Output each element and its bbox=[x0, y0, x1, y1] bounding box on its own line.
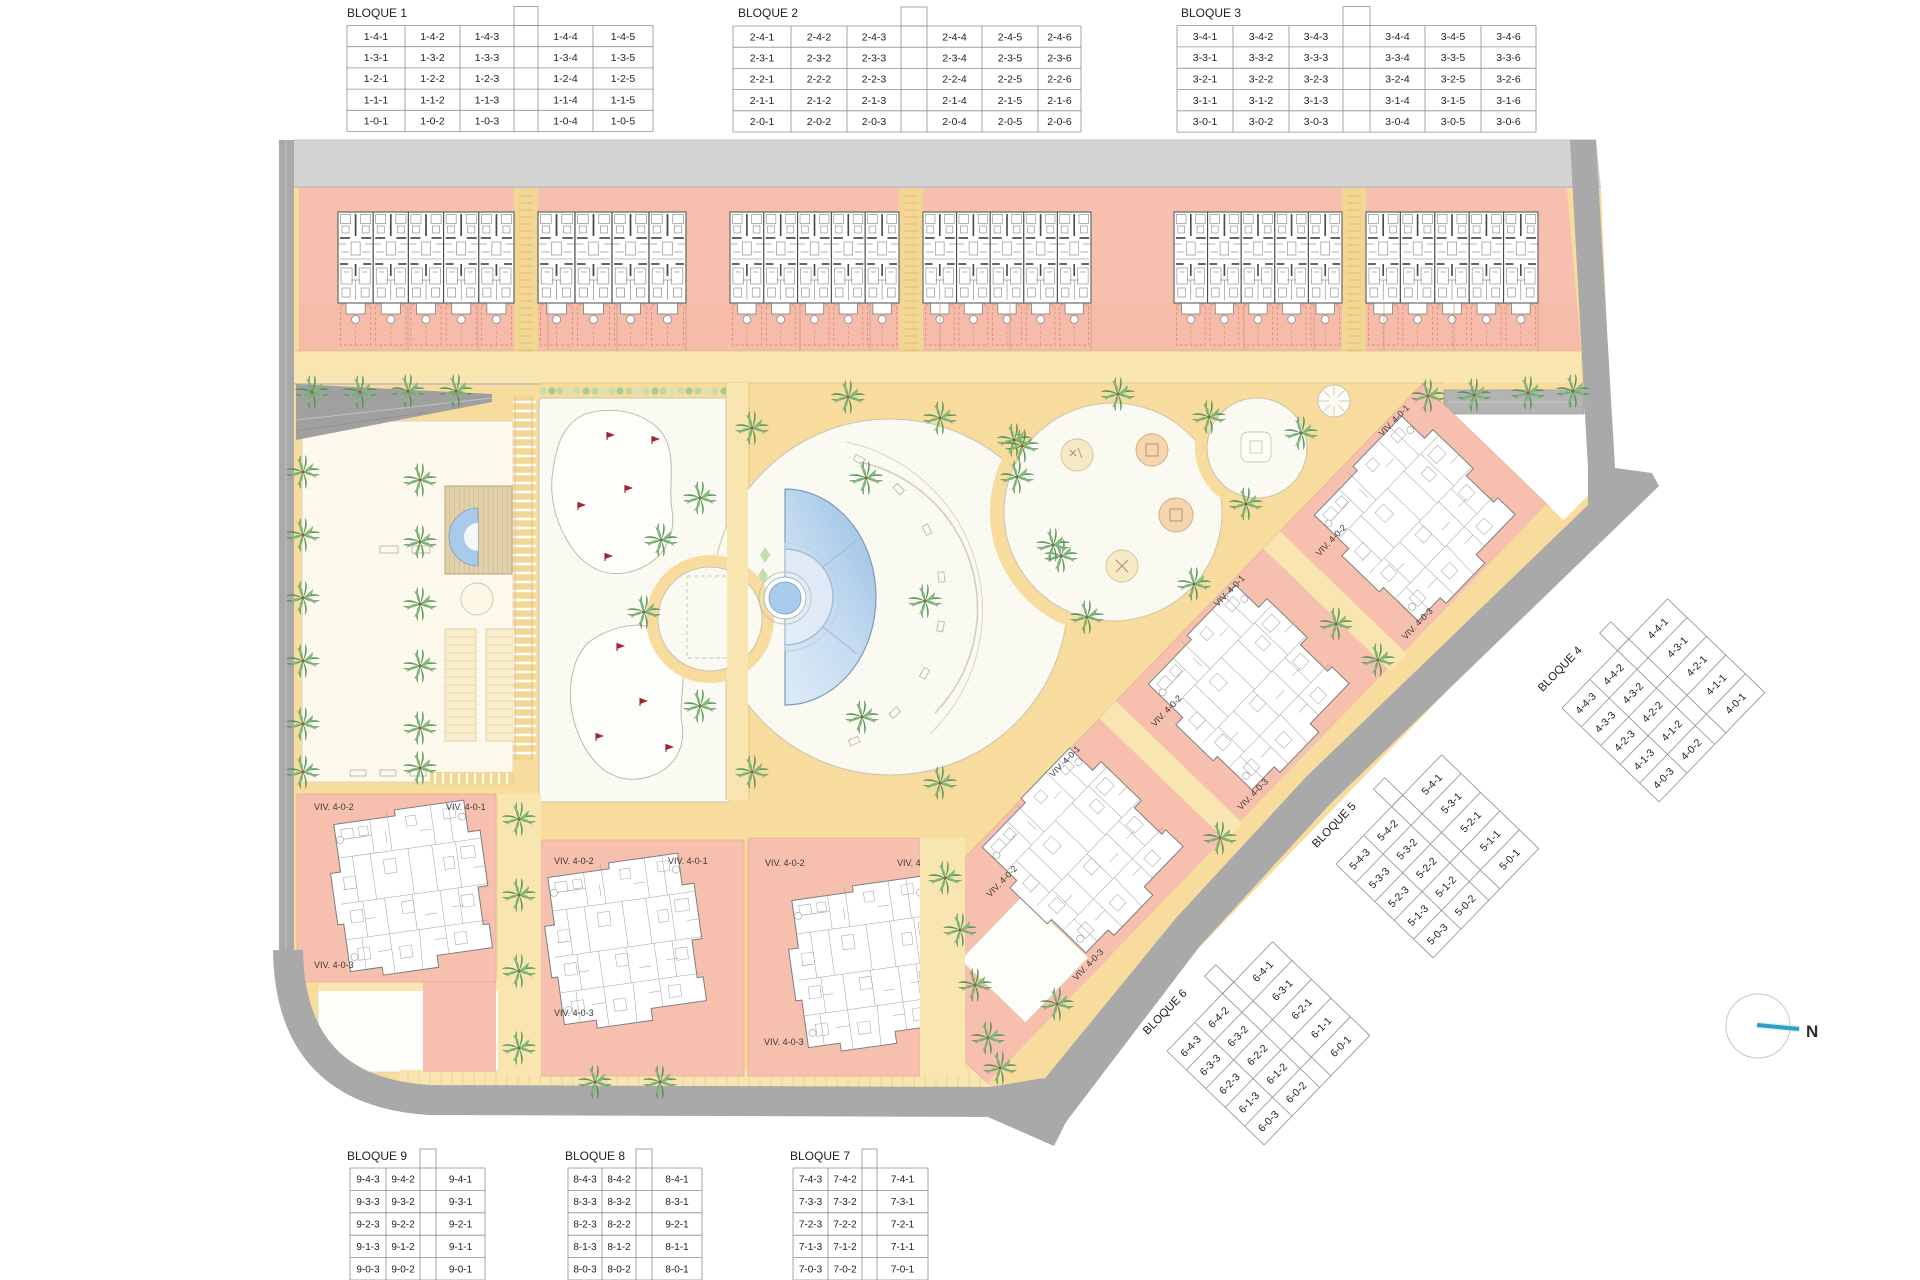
svg-text:7-4-1: 7-4-1 bbox=[891, 1175, 915, 1186]
svg-text:VIV. 4-0-1: VIV. 4-0-1 bbox=[446, 802, 486, 812]
svg-text:1-1-2: 1-1-2 bbox=[420, 94, 445, 106]
svg-text:2-0-6: 2-0-6 bbox=[1047, 116, 1072, 128]
svg-text:3-0-5: 3-0-5 bbox=[1441, 116, 1466, 128]
svg-text:2-0-1: 2-0-1 bbox=[750, 116, 775, 128]
svg-text:8-1-3: 8-1-3 bbox=[573, 1242, 597, 1253]
svg-text:1-3-5: 1-3-5 bbox=[611, 52, 636, 64]
svg-text:1-4-2: 1-4-2 bbox=[420, 31, 445, 43]
svg-text:3-1-3: 3-1-3 bbox=[1304, 95, 1329, 107]
svg-text:3-4-6: 3-4-6 bbox=[1496, 31, 1521, 43]
svg-text:1-0-4: 1-0-4 bbox=[553, 116, 578, 128]
svg-text:3-2-6: 3-2-6 bbox=[1496, 74, 1521, 86]
svg-text:BLOQUE 3: BLOQUE 3 bbox=[1181, 6, 1241, 20]
svg-text:1-1-1: 1-1-1 bbox=[364, 94, 389, 106]
svg-text:3-1-5: 3-1-5 bbox=[1441, 95, 1466, 107]
svg-text:2-1-4: 2-1-4 bbox=[942, 95, 967, 107]
svg-text:9-2-3: 9-2-3 bbox=[356, 1220, 380, 1231]
svg-text:1-1-4: 1-1-4 bbox=[553, 94, 578, 106]
svg-text:8-1-2: 8-1-2 bbox=[607, 1242, 631, 1253]
svg-text:1-2-4: 1-2-4 bbox=[553, 73, 578, 85]
svg-text:8-2-3: 8-2-3 bbox=[573, 1220, 597, 1231]
svg-text:BLOQUE 7: BLOQUE 7 bbox=[790, 1149, 850, 1163]
svg-text:2-3-5: 2-3-5 bbox=[998, 53, 1023, 65]
svg-text:2-3-3: 2-3-3 bbox=[862, 53, 887, 65]
svg-text:1-3-3: 1-3-3 bbox=[475, 52, 500, 64]
svg-text:BLOQUE 1: BLOQUE 1 bbox=[347, 6, 407, 20]
svg-text:8-4-2: 8-4-2 bbox=[607, 1175, 631, 1186]
svg-text:9-1-2: 9-1-2 bbox=[391, 1242, 415, 1253]
svg-text:1-1-3: 1-1-3 bbox=[475, 94, 500, 106]
svg-text:8-3-2: 8-3-2 bbox=[607, 1197, 631, 1208]
svg-text:1-2-1: 1-2-1 bbox=[364, 73, 389, 85]
svg-text:2-3-1: 2-3-1 bbox=[750, 53, 775, 65]
svg-text:VIV. 4-0-2: VIV. 4-0-2 bbox=[765, 858, 805, 868]
svg-text:2-3-2: 2-3-2 bbox=[807, 53, 832, 65]
svg-text:7-3-2: 7-3-2 bbox=[833, 1197, 857, 1208]
svg-text:2-4-6: 2-4-6 bbox=[1047, 31, 1072, 43]
svg-text:7-4-2: 7-4-2 bbox=[833, 1175, 857, 1186]
svg-text:7-3-1: 7-3-1 bbox=[891, 1197, 915, 1208]
svg-text:9-0-3: 9-0-3 bbox=[356, 1264, 380, 1275]
svg-text:9-4-3: 9-4-3 bbox=[356, 1175, 380, 1186]
svg-text:9-2-1: 9-2-1 bbox=[665, 1220, 689, 1231]
svg-text:7-1-3: 7-1-3 bbox=[799, 1242, 823, 1253]
svg-text:2-4-3: 2-4-3 bbox=[862, 31, 887, 43]
svg-text:VIV. 4-0-2: VIV. 4-0-2 bbox=[554, 856, 594, 866]
svg-text:1-4-4: 1-4-4 bbox=[553, 31, 578, 43]
svg-text:7-1-2: 7-1-2 bbox=[833, 1242, 857, 1253]
svg-text:2-2-2: 2-2-2 bbox=[807, 74, 832, 86]
svg-text:8-4-3: 8-4-3 bbox=[573, 1175, 597, 1186]
svg-text:7-0-1: 7-0-1 bbox=[891, 1264, 915, 1275]
svg-text:3-0-1: 3-0-1 bbox=[1193, 116, 1218, 128]
svg-text:N: N bbox=[1806, 1022, 1818, 1041]
svg-text:7-4-3: 7-4-3 bbox=[799, 1175, 823, 1186]
svg-text:1-0-1: 1-0-1 bbox=[364, 116, 389, 128]
svg-text:1-2-5: 1-2-5 bbox=[611, 73, 636, 85]
svg-text:2-0-2: 2-0-2 bbox=[807, 116, 832, 128]
svg-text:9-0-2: 9-0-2 bbox=[391, 1264, 415, 1275]
svg-text:3-2-1: 3-2-1 bbox=[1193, 74, 1218, 86]
svg-text:2-2-1: 2-2-1 bbox=[750, 74, 775, 86]
svg-text:2-0-3: 2-0-3 bbox=[862, 116, 887, 128]
svg-text:1-2-2: 1-2-2 bbox=[420, 73, 445, 85]
svg-text:3-4-2: 3-4-2 bbox=[1249, 31, 1274, 43]
svg-text:3-1-1: 3-1-1 bbox=[1193, 95, 1218, 107]
svg-text:9-3-3: 9-3-3 bbox=[356, 1197, 380, 1208]
svg-text:2-4-2: 2-4-2 bbox=[807, 31, 832, 43]
svg-text:1-4-5: 1-4-5 bbox=[611, 31, 636, 43]
svg-text:3-3-5: 3-3-5 bbox=[1441, 52, 1466, 64]
svg-text:3-4-5: 3-4-5 bbox=[1441, 31, 1466, 43]
svg-text:8-3-1: 8-3-1 bbox=[665, 1197, 689, 1208]
svg-text:2-3-4: 2-3-4 bbox=[942, 53, 967, 65]
svg-text:8-0-3: 8-0-3 bbox=[573, 1264, 597, 1275]
svg-text:3-0-2: 3-0-2 bbox=[1249, 116, 1274, 128]
svg-text:8-1-1: 8-1-1 bbox=[665, 1242, 689, 1253]
svg-text:3-0-6: 3-0-6 bbox=[1496, 116, 1521, 128]
svg-text:9-0-1: 9-0-1 bbox=[449, 1264, 473, 1275]
svg-text:8-4-1: 8-4-1 bbox=[665, 1175, 689, 1186]
svg-text:BLOQUE 2: BLOQUE 2 bbox=[738, 6, 798, 20]
svg-text:2-4-4: 2-4-4 bbox=[942, 31, 967, 43]
svg-text:1-1-5: 1-1-5 bbox=[611, 94, 636, 106]
svg-text:9-3-1: 9-3-1 bbox=[449, 1197, 473, 1208]
svg-text:3-3-2: 3-3-2 bbox=[1249, 52, 1274, 64]
svg-text:2-1-6: 2-1-6 bbox=[1047, 95, 1072, 107]
svg-text:1-0-2: 1-0-2 bbox=[420, 116, 445, 128]
svg-text:9-2-2: 9-2-2 bbox=[391, 1220, 415, 1231]
svg-text:3-1-2: 3-1-2 bbox=[1249, 95, 1274, 107]
svg-text:8-0-1: 8-0-1 bbox=[665, 1264, 689, 1275]
svg-text:BLOQUE 9: BLOQUE 9 bbox=[347, 1149, 407, 1163]
svg-text:2-4-5: 2-4-5 bbox=[998, 31, 1023, 43]
svg-text:7-1-1: 7-1-1 bbox=[891, 1242, 915, 1253]
svg-text:2-1-2: 2-1-2 bbox=[807, 95, 832, 107]
svg-text:7-2-2: 7-2-2 bbox=[833, 1220, 857, 1231]
svg-text:7-2-1: 7-2-1 bbox=[891, 1220, 915, 1231]
svg-text:9-1-3: 9-1-3 bbox=[356, 1242, 380, 1253]
svg-text:3-0-3: 3-0-3 bbox=[1304, 116, 1329, 128]
svg-text:1-4-3: 1-4-3 bbox=[475, 31, 500, 43]
svg-text:2-2-4: 2-2-4 bbox=[942, 74, 967, 86]
svg-text:2-1-1: 2-1-1 bbox=[750, 95, 775, 107]
svg-text:8-3-3: 8-3-3 bbox=[573, 1197, 597, 1208]
svg-text:2-2-3: 2-2-3 bbox=[862, 74, 887, 86]
svg-text:VIV. 4-0-1: VIV. 4-0-1 bbox=[668, 856, 708, 866]
svg-text:2-0-5: 2-0-5 bbox=[998, 116, 1023, 128]
svg-text:8-2-2: 8-2-2 bbox=[607, 1220, 631, 1231]
svg-text:1-4-1: 1-4-1 bbox=[364, 31, 389, 43]
svg-text:9-2-1: 9-2-1 bbox=[449, 1220, 473, 1231]
svg-text:2-3-6: 2-3-6 bbox=[1047, 53, 1072, 65]
svg-text:3-2-5: 3-2-5 bbox=[1441, 74, 1466, 86]
svg-text:2-1-5: 2-1-5 bbox=[998, 95, 1023, 107]
svg-text:2-0-4: 2-0-4 bbox=[942, 116, 967, 128]
svg-text:3-0-4: 3-0-4 bbox=[1385, 116, 1410, 128]
svg-text:7-0-3: 7-0-3 bbox=[799, 1264, 823, 1275]
svg-text:VIV. 4-0-3: VIV. 4-0-3 bbox=[314, 960, 354, 970]
svg-text:1-0-3: 1-0-3 bbox=[475, 116, 500, 128]
svg-text:3-4-1: 3-4-1 bbox=[1193, 31, 1218, 43]
svg-text:VIV. 4-0-3: VIV. 4-0-3 bbox=[554, 1008, 594, 1018]
svg-text:2-1-3: 2-1-3 bbox=[862, 95, 887, 107]
svg-text:7-0-2: 7-0-2 bbox=[833, 1264, 857, 1275]
svg-text:2-4-1: 2-4-1 bbox=[750, 31, 775, 43]
svg-text:1-3-4: 1-3-4 bbox=[553, 52, 578, 64]
svg-text:9-4-2: 9-4-2 bbox=[391, 1175, 415, 1186]
svg-text:2-2-5: 2-2-5 bbox=[998, 74, 1023, 86]
svg-text:7-3-3: 7-3-3 bbox=[799, 1197, 823, 1208]
svg-text:VIV. 4-0-3: VIV. 4-0-3 bbox=[764, 1037, 804, 1047]
svg-text:3-1-4: 3-1-4 bbox=[1385, 95, 1410, 107]
svg-text:3-3-4: 3-3-4 bbox=[1385, 52, 1410, 64]
svg-text:1-3-1: 1-3-1 bbox=[364, 52, 389, 64]
svg-text:3-2-3: 3-2-3 bbox=[1304, 74, 1329, 86]
svg-text:9-3-2: 9-3-2 bbox=[391, 1197, 415, 1208]
svg-text:3-2-4: 3-2-4 bbox=[1385, 74, 1410, 86]
svg-text:3-1-6: 3-1-6 bbox=[1496, 95, 1521, 107]
svg-text:3-4-3: 3-4-3 bbox=[1304, 31, 1329, 43]
svg-text:1-3-2: 1-3-2 bbox=[420, 52, 445, 64]
svg-text:2-2-6: 2-2-6 bbox=[1047, 74, 1072, 86]
svg-text:7-2-3: 7-2-3 bbox=[799, 1220, 823, 1231]
svg-text:3-3-6: 3-3-6 bbox=[1496, 52, 1521, 64]
svg-text:3-2-2: 3-2-2 bbox=[1249, 74, 1274, 86]
svg-text:3-4-4: 3-4-4 bbox=[1385, 31, 1410, 43]
svg-text:BLOQUE 8: BLOQUE 8 bbox=[565, 1149, 625, 1163]
svg-text:VIV. 4-0-2: VIV. 4-0-2 bbox=[314, 802, 354, 812]
svg-text:1-0-5: 1-0-5 bbox=[611, 116, 636, 128]
svg-text:9-4-1: 9-4-1 bbox=[449, 1175, 473, 1186]
svg-text:8-0-2: 8-0-2 bbox=[607, 1264, 631, 1275]
svg-text:1-2-3: 1-2-3 bbox=[475, 73, 500, 85]
svg-text:3-3-1: 3-3-1 bbox=[1193, 52, 1218, 64]
svg-text:9-1-1: 9-1-1 bbox=[449, 1242, 473, 1253]
svg-text:3-3-3: 3-3-3 bbox=[1304, 52, 1329, 64]
